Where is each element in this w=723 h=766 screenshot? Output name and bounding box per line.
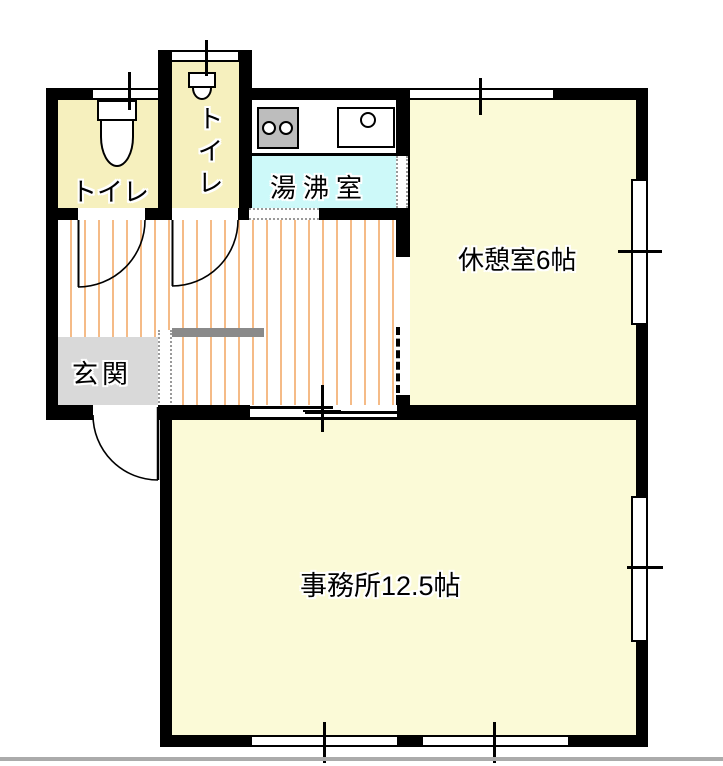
stove-burner-left [262,121,276,135]
kitchenette-breakroom-sliding-door [396,156,408,208]
break-room-door-opening [396,257,410,327]
toilet-left-label: トイレ [71,172,149,209]
toilet-right-label: トイレ [191,105,228,201]
entrance-door-arc [93,415,158,480]
page-bottom-rule [0,757,723,761]
toilet-left-window [93,90,158,98]
break-room-label: 休憩室6帖 [458,240,576,277]
entrance-label: 玄関 [72,354,132,391]
bottom-outer-wall [160,735,648,747]
sink-drain [360,112,376,128]
toilet-left-door-opening [78,208,145,220]
hall-office-wall [160,405,648,420]
toilet-left-tank [97,100,137,121]
stove-burner-right [279,121,293,135]
tick-toilet-left-window [128,72,131,110]
tick-break-room-right-window [618,250,662,253]
toilet-divider-wall [158,50,172,220]
kitchenette-sliding-door [249,208,319,220]
entrance-sliding-door [158,330,172,407]
toilet-right-side-wall [239,50,252,220]
tick-office-right-window [627,566,663,569]
left-outer-wall [46,88,58,420]
kitchenette-label: 湯沸室 [270,168,369,205]
toilet-right-door-opening [172,208,238,220]
break-room-sliding-panel [396,327,400,393]
entrance-door-opening [93,405,158,420]
floor-plan-canvas: トイレ トイレ 湯沸室 休憩室6帖 玄関 事務所12.5帖 [0,0,723,766]
office-left-wall [160,405,172,747]
entrance-step-edge [172,328,264,337]
tick-office-sliding-door [321,385,324,432]
tick-office-sliding-door-dash [303,410,341,412]
tick-break-room-top-window [479,78,482,115]
tick-toilet-right-window [205,40,208,76]
office-label: 事務所12.5帖 [300,564,461,603]
office-right-window [631,496,648,642]
